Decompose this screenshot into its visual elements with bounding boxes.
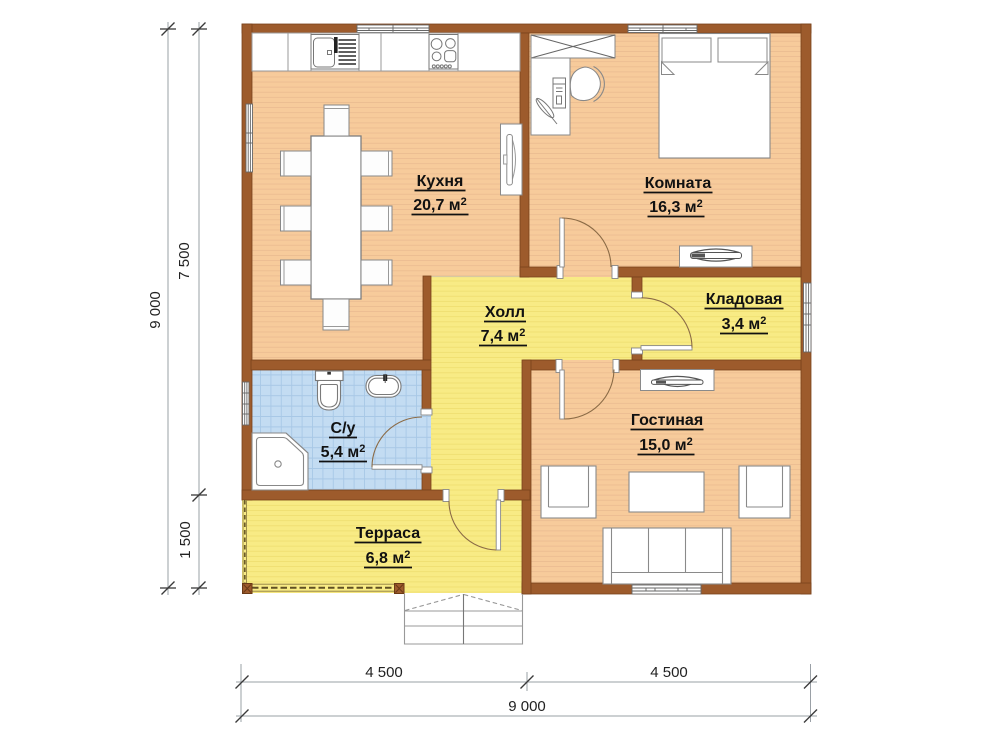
svg-text:4 500: 4 500 [650,664,688,681]
svg-text:9 000: 9 000 [508,698,546,715]
svg-text:7 500: 7 500 [176,242,193,280]
svg-text:7,4 м2: 7,4 м2 [481,327,526,345]
svg-text:Кладовая: Кладовая [706,291,783,308]
svg-text:15,0 м2: 15,0 м2 [639,436,693,454]
svg-text:Комната: Комната [645,175,712,192]
svg-text:20,7 м2: 20,7 м2 [413,196,467,214]
svg-text:1 500: 1 500 [177,521,194,559]
svg-text:Терраса: Терраса [356,525,420,542]
svg-text:5,4 м2: 5,4 м2 [321,443,366,461]
svg-text:4 500: 4 500 [365,664,403,681]
svg-text:16,3 м2: 16,3 м2 [649,198,703,216]
svg-text:С/у: С/у [331,420,356,437]
svg-text:Холл: Холл [485,304,525,321]
svg-text:9 000: 9 000 [147,291,164,329]
svg-text:6,8 м2: 6,8 м2 [366,549,411,567]
svg-text:Гостиная: Гостиная [631,412,703,429]
svg-text:Кухня: Кухня [417,173,464,190]
svg-text:3,4 м2: 3,4 м2 [722,315,767,333]
